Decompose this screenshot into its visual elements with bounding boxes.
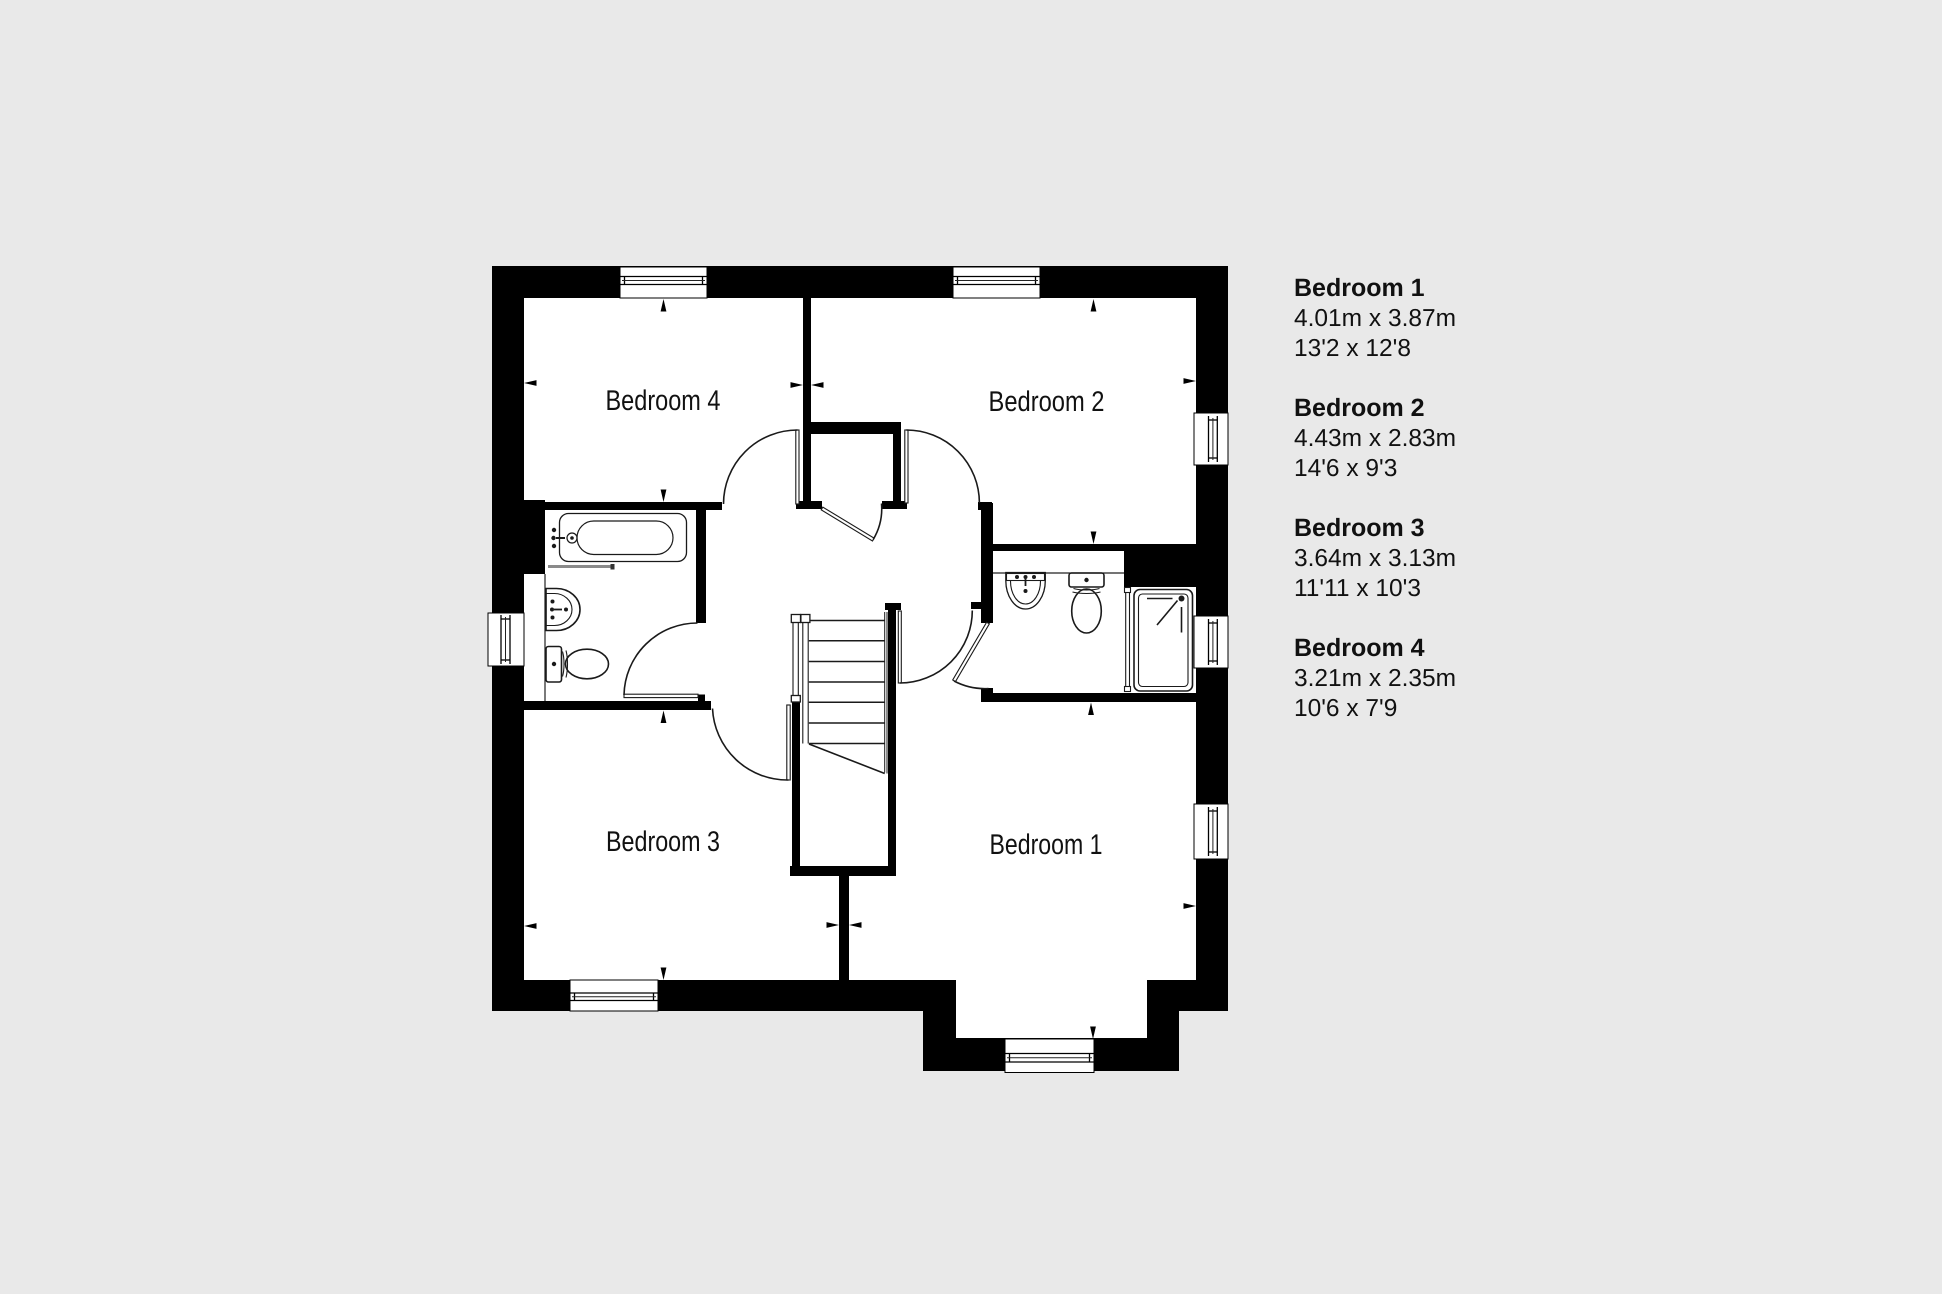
svg-text:Bedroom 4: Bedroom 4 [1294,634,1425,662]
svg-text:Bedroom 3: Bedroom 3 [606,826,720,858]
svg-text:Bedroom 3: Bedroom 3 [1294,514,1425,542]
svg-text:4.01m x 3.87m: 4.01m x 3.87m [1294,305,1456,332]
svg-text:Bedroom 1: Bedroom 1 [1294,274,1425,302]
svg-text:10'6 x 7'9: 10'6 x 7'9 [1294,695,1397,722]
svg-text:Bedroom 2: Bedroom 2 [1294,394,1425,422]
svg-text:14'6 x 9'3: 14'6 x 9'3 [1294,455,1397,482]
svg-text:13'2 x 12'8: 13'2 x 12'8 [1294,335,1411,362]
svg-text:Bedroom 4: Bedroom 4 [606,385,721,417]
svg-text:Bedroom 2: Bedroom 2 [989,386,1105,418]
svg-text:11'11 x 10'3: 11'11 x 10'3 [1294,575,1421,602]
svg-text:Bedroom 1: Bedroom 1 [990,829,1103,861]
svg-text:3.21m x 2.35m: 3.21m x 2.35m [1294,665,1456,692]
svg-text:3.64m x 3.13m: 3.64m x 3.13m [1294,545,1456,572]
svg-text:4.43m x 2.83m: 4.43m x 2.83m [1294,425,1456,452]
